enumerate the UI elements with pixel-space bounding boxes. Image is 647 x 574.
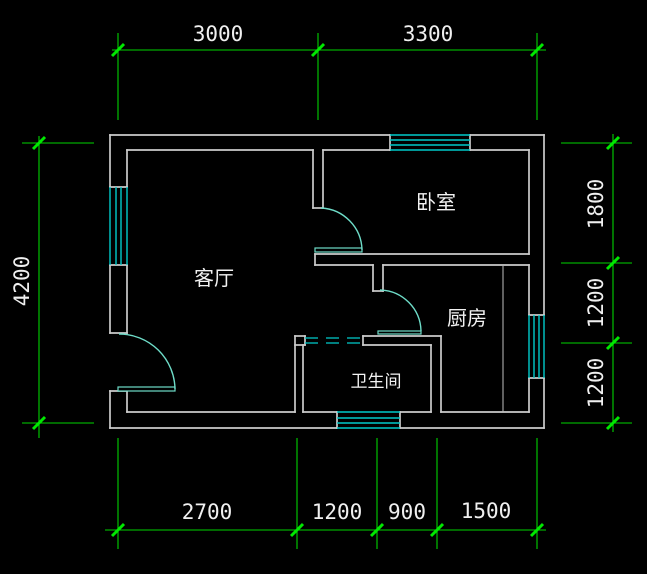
- entry-door: [118, 334, 175, 391]
- dimension-ticks: [33, 44, 619, 536]
- dim-value-bottom-2: 1200: [312, 500, 363, 524]
- doors: [118, 208, 421, 391]
- room-labels: 客厅 卧室 厨房 卫生间: [194, 190, 487, 392]
- entry-door-leaf: [118, 387, 175, 391]
- dim-value-right-1: 1800: [584, 179, 608, 230]
- dimension-values: 3000 3300 4200 1800 1200 1200 2700 1200 …: [10, 22, 608, 524]
- room-label-kitchen: 厨房: [447, 306, 487, 330]
- dim-value-top-2: 3300: [403, 22, 454, 46]
- room-label-bathroom: 卫生间: [351, 372, 402, 392]
- bedroom-door-arc: [321, 208, 362, 250]
- window-bottom: [337, 412, 400, 428]
- dimension-lines: 3000 3300 4200 1800 1200 1200 2700 1200 …: [10, 22, 632, 549]
- floor-plan-drawing: 3000 3300 4200 1800 1200 1200 2700 1200 …: [0, 0, 647, 574]
- dim-value-right-3: 1200: [584, 358, 608, 409]
- dim-value-top-1: 3000: [193, 22, 244, 46]
- window-left: [110, 187, 127, 265]
- entry-door-arc: [119, 334, 175, 389]
- window-right: [529, 315, 544, 378]
- dim-value-bottom-4: 1500: [461, 499, 512, 523]
- dim-value-bottom-3: 900: [388, 500, 426, 524]
- room-label-living-room: 客厅: [194, 266, 234, 290]
- bathroom-sliding-door: [305, 338, 362, 343]
- bedroom-door: [315, 208, 362, 252]
- kitchen-door-leaf: [378, 331, 421, 334]
- bedroom-door-leaf: [315, 248, 362, 252]
- dim-value-right-2: 1200: [584, 278, 608, 329]
- room-label-bedroom: 卧室: [416, 190, 456, 214]
- cad-canvas: 3000 3300 4200 1800 1200 1200 2700 1200 …: [0, 0, 647, 574]
- dim-value-left-1: 4200: [10, 256, 34, 307]
- dim-value-bottom-1: 2700: [182, 500, 233, 524]
- window-top: [390, 135, 470, 150]
- kitchen-door-arc: [380, 290, 421, 331]
- kitchen-door: [378, 290, 421, 334]
